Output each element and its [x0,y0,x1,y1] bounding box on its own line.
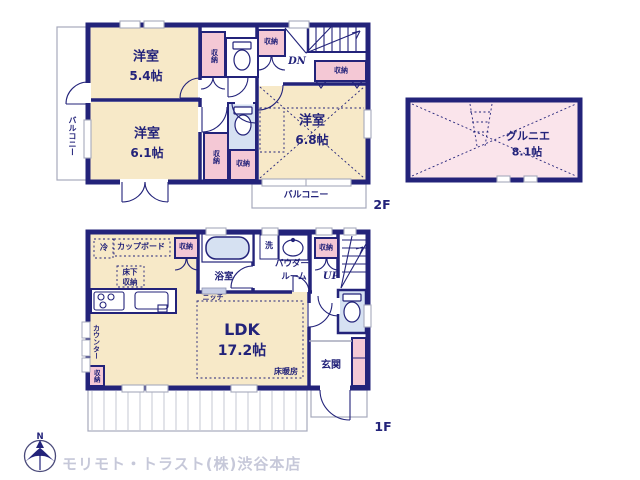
stairs-down-2f [285,27,366,53]
closet-1f-g-label: 収納 [319,245,333,252]
entrance-label: 玄関 [321,361,341,371]
powder-room-label-2: ルーム [281,273,306,282]
toilet-icon-2f-top [233,42,251,70]
counter-label: カウンター [93,325,100,360]
underfloor-storage-label-1: 床下 [123,268,138,276]
shoe-cabinet [352,338,366,386]
compass-north-label: N [36,433,43,442]
floorplan-graphic [0,0,640,480]
powder-room-label-1: パウダー [275,260,309,269]
bedroom3-size: 6.8帖 [295,134,328,146]
toilet-icon-2f-mid [234,107,252,135]
closet-1f-f-label: 収納 [179,244,193,251]
counter-shelves [82,322,90,372]
closet-2f-b-label: 収納 [264,39,278,46]
balcony-bottom-label: バルコニー [284,192,329,201]
balcony-left-label: バルコニー [68,116,76,156]
stairs-down-label: DN [288,57,306,67]
refrigerator-label: 冷 [100,244,108,252]
bedroom2-name: 洋室 [134,128,160,141]
floor2-label: 2F [373,199,390,212]
stairs-up-label: UP [323,272,339,282]
floorplan-page: 洋室 5.4帖 洋室 6.1帖 洋室 6.8帖 バルコニー 収納 収納 収納 D… [0,0,640,480]
ldk-size: 17.2帖 [218,344,267,358]
underfloor-storage-label-2: 収納 [123,278,138,286]
toilet-icon-1f [343,294,361,322]
ldk-name: LDK [224,322,260,338]
closet-1f-h-label: 収納 [93,370,100,383]
bedroom3-name: 洋室 [299,115,325,128]
cupboard-label: カップボード [117,243,165,251]
closet-2f-e-label: 収納 [236,161,250,168]
stairs-up-1f [341,236,366,288]
closet-2f-a-label: 収納 [211,49,218,63]
closet-2f-d-label: 収納 [213,150,220,164]
closet-2f-c-label: 収納 [334,68,348,75]
bathtub-icon [202,234,253,262]
compass-icon [25,440,56,472]
bedroom1-size: 5.4帖 [129,70,162,82]
loft-size: 8.1帖 [512,147,543,158]
bedroom1-name: 洋室 [133,51,159,64]
kitchen-counter [91,289,176,313]
vanity-sink-icon [279,235,308,260]
deck-outline [88,390,307,431]
floor1-label: 1F [374,421,391,434]
washer-label: 洗 [265,242,273,250]
company-name: モリモト・トラスト(株)渋谷本店 [62,453,301,474]
niche-label: ニッチ [203,295,224,302]
bathroom-label: 浴室 [214,272,233,282]
porch-outline [311,390,367,417]
bedroom2-size: 6.1帖 [130,147,163,159]
loft-name: グルニエ [506,131,550,142]
floor-heating-label: 床暖房 [274,368,298,376]
